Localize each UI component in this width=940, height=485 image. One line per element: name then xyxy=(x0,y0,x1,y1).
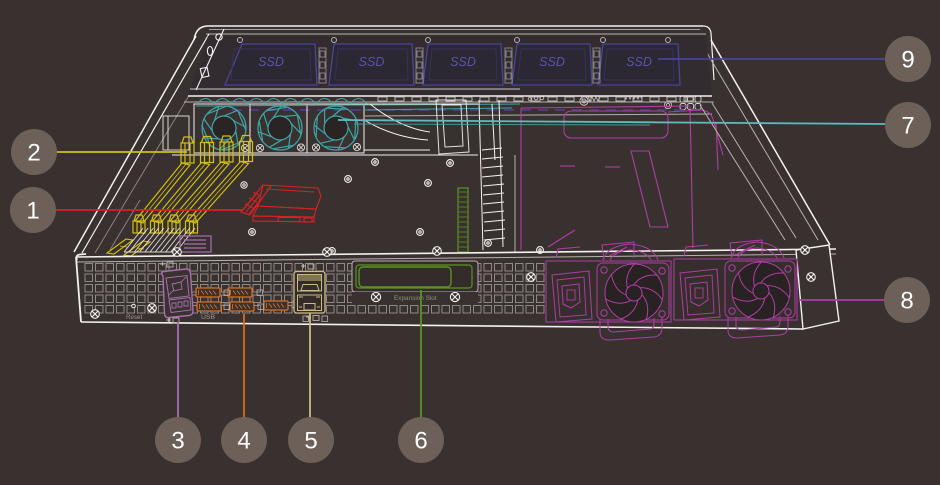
svg-text:8: 8 xyxy=(900,288,913,315)
svg-text:1: 1 xyxy=(26,198,39,225)
svg-text:5: 5 xyxy=(304,428,317,455)
svg-text:Expansion Slot: Expansion Slot xyxy=(394,295,437,302)
svg-text:3: 3 xyxy=(171,428,184,455)
svg-text:4: 4 xyxy=(237,428,250,455)
svg-text:7: 7 xyxy=(901,113,914,140)
svg-text:SSD: SSD xyxy=(626,55,652,69)
svg-text:9: 9 xyxy=(901,47,914,74)
svg-text:6: 6 xyxy=(414,428,427,455)
svg-text:2: 2 xyxy=(27,140,40,167)
svg-text:Reset: Reset xyxy=(126,314,142,321)
svg-text:SSD: SSD xyxy=(450,55,476,69)
svg-text:USB: USB xyxy=(201,314,215,321)
svg-text:SSD: SSD xyxy=(258,55,284,69)
svg-text:SSD: SSD xyxy=(539,55,565,69)
svg-text:SSD: SSD xyxy=(359,55,385,69)
